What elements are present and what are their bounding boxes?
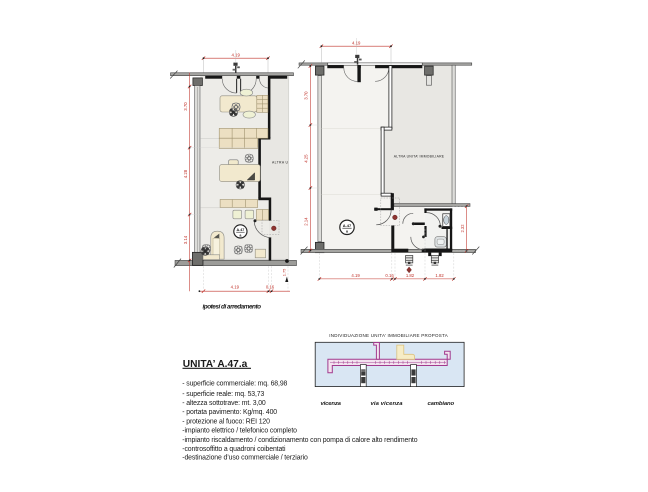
- svg-text:3.70: 3.70: [304, 91, 309, 100]
- svg-text:ALTRA UNITA’ IMMOBILIARE: ALTRA UNITA’ IMMOBILIARE: [394, 155, 445, 159]
- svg-text:4.28: 4.28: [183, 169, 188, 178]
- svg-text:- superficie reale: mq. 53,73: - superficie reale: mq. 53,73: [182, 391, 264, 398]
- svg-text:vicenza: vicenza: [320, 401, 341, 407]
- svg-text:0.16: 0.16: [385, 273, 394, 278]
- svg-text:0.16: 0.16: [266, 285, 275, 290]
- svg-text:- portata pavimento: Kg/mq. 40: - portata pavimento: Kg/mq. 400: [182, 409, 277, 416]
- svg-text:3.14: 3.14: [183, 235, 188, 244]
- svg-text:1.75: 1.75: [281, 269, 286, 277]
- svg-text:4.19: 4.19: [351, 273, 360, 278]
- svg-text:4.25: 4.25: [304, 154, 309, 163]
- svg-text:a: a: [239, 233, 241, 237]
- svg-text:2.32: 2.32: [460, 224, 465, 233]
- svg-text:2.14: 2.14: [304, 217, 309, 226]
- svg-text:INDIVIDUAZIONE UNITA’ IMMOBI: INDIVIDUAZIONE UNITA’ IMMOBILIARE PROPOS…: [329, 333, 448, 338]
- svg-text:3.70: 3.70: [183, 102, 188, 111]
- svg-text:-destinazione d’uso commercial: -destinazione d’uso commerciale / terzia…: [182, 455, 308, 462]
- svg-text:- altezza sottotrave: mt. 3,00: - altezza sottotrave: mt. 3,00: [182, 400, 266, 407]
- svg-text:- protezione al fuoco: REI 120: - protezione al fuoco: REI 120: [182, 418, 270, 425]
- svg-text:cambiano: cambiano: [428, 401, 455, 407]
- svg-text:4.19: 4.19: [231, 285, 240, 290]
- svg-text:1.82: 1.82: [435, 273, 444, 278]
- svg-text:A.47: A.47: [237, 228, 245, 232]
- svg-text:ALTRA U: ALTRA U: [272, 160, 289, 164]
- svg-text:- superficie commerciale: mq.: - superficie commerciale: mq. 68,98: [182, 381, 287, 388]
- svg-text:1.82: 1.82: [406, 273, 415, 278]
- svg-text:-impianto elettrico / telefoni: -impianto elettrico / telefonico complet…: [182, 427, 297, 434]
- svg-text:via vicenza: via vicenza: [371, 401, 404, 407]
- svg-text:-controsoffitto a quadroni coi: -controsoffitto a quadroni coibentati: [182, 446, 286, 453]
- svg-text:A.47: A.47: [343, 223, 352, 228]
- svg-text:-impianto riscaldamento / cond: -impianto riscaldamento / condizionament…: [182, 437, 417, 444]
- svg-text:4.19: 4.19: [232, 52, 241, 57]
- svg-text:ipotesi di arredamento: ipotesi di arredamento: [203, 303, 262, 310]
